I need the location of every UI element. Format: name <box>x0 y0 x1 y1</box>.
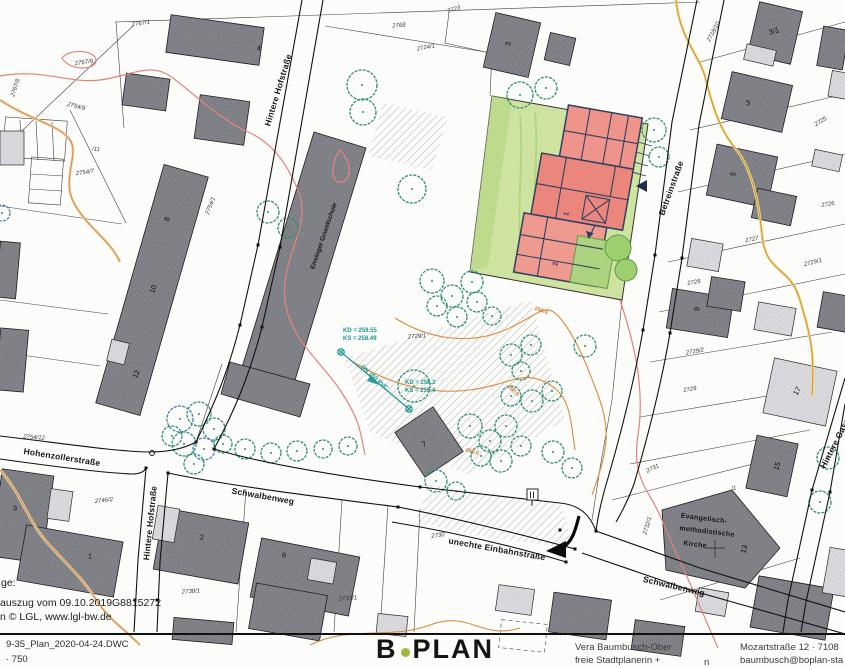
manhole-icon <box>150 451 155 456</box>
planner-role: freie Stadtplanerin + <box>575 654 672 667</box>
map-canvas <box>0 0 845 667</box>
planner-block: Vera Baumbusch-Ober freie Stadtplanerin … <box>575 641 672 667</box>
planner-email: baumbusch@boplan-sta <box>740 654 843 667</box>
address-block: Mozartstraße 12 · 7108 baumbusch@boplan-… <box>740 641 843 667</box>
logo-dot-icon <box>401 648 410 657</box>
scale-value: · 750 <box>6 654 28 665</box>
buildings-dark <box>0 2 845 657</box>
planner-address: Mozartstraße 12 · 7108 <box>740 641 843 654</box>
file-name: 9-35_Plan_2020-04-24.DWC <box>6 639 129 650</box>
logo-plan: PLAN <box>413 634 495 664</box>
logo-b: B <box>376 634 398 664</box>
building-kirche <box>662 490 780 588</box>
stray-char: n <box>704 656 709 667</box>
boplan-logo: BPLAN <box>376 634 494 665</box>
planner-name: Vera Baumbusch-Ober <box>575 641 672 654</box>
site-plan-page: Hintere HofstraßeHintere HofstraßeHohenz… <box>0 0 845 667</box>
